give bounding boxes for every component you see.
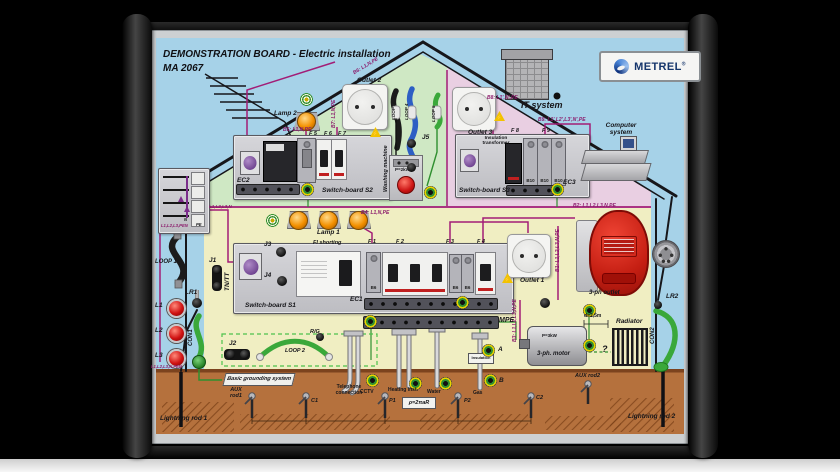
- j2-jack-right[interactable]: [240, 350, 249, 359]
- wire-b8-label: B8: L1',N',PE: [487, 96, 518, 102]
- outlet1-hole-left: [520, 254, 524, 258]
- ec1-label: EC1: [350, 296, 363, 303]
- wire-b4-label: B4: L1,N,PE: [361, 211, 389, 217]
- supply-arrow-1: [178, 196, 184, 202]
- rho-formula-label: ρ=2πaR: [409, 400, 430, 406]
- j5-jack-lower[interactable]: [407, 163, 416, 172]
- cctv-label: CCTV: [360, 390, 374, 396]
- fuse-f5-label: F 5: [309, 131, 317, 137]
- rho-formula-box: ρ=2πaR: [402, 397, 436, 409]
- it-system-label: IT system: [521, 100, 563, 110]
- outlet3-socket[interactable]: [452, 87, 496, 131]
- washing-machine-label: Washing machine: [383, 145, 389, 192]
- mpe-bar[interactable]: [363, 316, 499, 329]
- lamp1-rotary-switch[interactable]: [239, 253, 262, 280]
- phase-lamp-l2-label: L2: [155, 327, 163, 334]
- right-earth-terminal-2[interactable]: [583, 339, 596, 352]
- supply-panel-label: L1,L2,L3,PEN: [161, 224, 188, 229]
- loop1-label: LOOP 1: [155, 259, 177, 266]
- rg-label: R/G: [310, 329, 320, 335]
- terminal-b-earth[interactable]: [484, 374, 497, 387]
- wire-b5-label: B5: L1,N,PE: [283, 128, 311, 134]
- board-title-line1: DEMONSTRATION BOARD - Electric installat…: [163, 48, 391, 62]
- metrel-swirl-icon: [614, 59, 629, 74]
- j4-jack[interactable]: [277, 276, 287, 286]
- wire-b2-label: B2: L1,L2,L3,N,PE: [573, 204, 616, 210]
- con1-jack[interactable]: [192, 355, 206, 369]
- s1-breaker-1pole[interactable]: [475, 252, 496, 295]
- s2-breaker-1-mark: [319, 173, 329, 176]
- outlet3-hole-left: [465, 107, 469, 111]
- gas-label: Gas: [473, 391, 482, 397]
- con1-label: CON1: [188, 329, 195, 346]
- motor-label: 3-ph. motor: [537, 351, 570, 358]
- supply-module-2: [191, 186, 205, 199]
- phase-lamp-l1: [167, 299, 186, 318]
- question-mark-label: ?: [602, 344, 608, 354]
- computer-desk-row2: [580, 163, 651, 181]
- outlet2-face: [347, 89, 383, 125]
- s1-fuse-module-1[interactable]: B6: [366, 252, 381, 293]
- s3-rotary-switch[interactable]: [460, 149, 479, 172]
- p1-label: P1: [389, 398, 396, 404]
- s1-terminal-strip[interactable]: [364, 298, 498, 310]
- j3-jack[interactable]: [276, 247, 286, 257]
- supply-arrow-2: [184, 206, 190, 212]
- terminal-a-label: A: [498, 346, 503, 353]
- wire-b7-label: B7: L1,N,PE: [332, 100, 338, 128]
- outlet2-label: Outlet 2: [357, 77, 381, 84]
- loop3-label: LOOP 3: [391, 104, 396, 120]
- outlet3-hole-right: [479, 107, 483, 111]
- basic-grounding-banner: Basic grounding system: [222, 373, 295, 386]
- s3-breaker-mark: [508, 177, 519, 180]
- wire-b1-label: B1: L1,L2,L3,N,PE: [556, 229, 562, 272]
- cee-label-plate: [601, 236, 637, 257]
- phase-lamp-l3-label: L3: [155, 352, 163, 359]
- s2-main-switch-lever[interactable]: [302, 149, 312, 168]
- motor-shaft: [519, 339, 530, 349]
- j1-jack-lower[interactable]: [213, 282, 221, 290]
- s1-earth-terminal[interactable]: [456, 296, 469, 309]
- s3-breaker-black[interactable]: [505, 143, 522, 184]
- cee-slot: [602, 273, 636, 284]
- lightning-rod2-label: Lightning rod 2: [628, 413, 675, 420]
- lamp1-earth-target: [266, 214, 279, 227]
- left-post: [122, 14, 152, 458]
- outlet2-hole-left: [355, 105, 359, 109]
- lr2-connector[interactable]: [652, 240, 680, 268]
- lr2-label: LR2: [666, 293, 678, 300]
- mpe-earth-terminal[interactable]: [364, 315, 377, 328]
- aux-rod1-label: AUX rod1: [224, 387, 248, 399]
- fi-shorting-label: FI shorting: [313, 240, 341, 246]
- loop4-label: LOOP 4: [404, 104, 409, 120]
- incoming-wire-label: L1,L2,L3,N,PEN: [151, 365, 182, 370]
- phase-lamp-l2: [167, 324, 186, 343]
- j1-label: J1: [209, 257, 216, 264]
- s1-breaker-3pole[interactable]: [382, 252, 448, 296]
- lamp2-label: Lamp 2: [274, 110, 297, 117]
- supply-module-3: [191, 200, 205, 213]
- j1-jack-upper[interactable]: [213, 266, 221, 274]
- fuse-f8-label: F 8: [511, 128, 519, 134]
- lr1-jack[interactable]: [192, 298, 202, 308]
- s3-fuse-module-2[interactable]: B10: [537, 138, 552, 186]
- outlet1-face: [512, 239, 546, 273]
- lamp1-bulb-1: [289, 211, 308, 230]
- supply-module-1: [191, 172, 205, 185]
- j4-label: J4: [264, 272, 271, 279]
- s2-terminal-strip[interactable]: [236, 184, 300, 195]
- s1-fuse-module-3[interactable]: B6: [461, 254, 474, 293]
- s1-breaker-1pole-toggle[interactable]: [480, 264, 491, 281]
- terminal-a-earth[interactable]: [482, 344, 495, 357]
- radiator-body: [612, 328, 648, 366]
- insulation-transformer-label: Insulation transformer: [477, 136, 515, 147]
- fuse-f3-label: F 3: [446, 239, 454, 245]
- radiator-label: Radiator: [616, 318, 642, 325]
- loop5-label: LOOP 5: [431, 106, 436, 122]
- demonstration-board-photo: DEMONSTRATION BOARD - Electric installat…: [0, 0, 840, 472]
- outlet1-label: Outlet 1: [520, 277, 544, 284]
- j5-jack-upper[interactable]: [407, 139, 416, 148]
- s2-breaker-2-mark: [334, 173, 344, 176]
- lamp2-rotary-switch[interactable]: [240, 151, 260, 175]
- computer-system-label: Computer system: [596, 122, 646, 137]
- switchboard-s2-label: Switch-board S2: [322, 187, 373, 194]
- s3-terminal-strip[interactable]: [506, 185, 554, 196]
- con2-label: CON2: [650, 327, 657, 344]
- lightning-rod1-label: Lightning rod 1: [160, 415, 207, 422]
- phase-lamp-l1-label: L1: [155, 302, 163, 309]
- washing-machine-lamp: [397, 176, 415, 194]
- computer-desk-row1: [581, 150, 649, 164]
- motor-power-label: P=3kW: [542, 333, 557, 338]
- ec2-label: EC2: [237, 177, 250, 184]
- s2-breaker-1[interactable]: [316, 139, 332, 180]
- switchboard-s3-label: Switch-board S3: [459, 187, 510, 194]
- s2-main-switch[interactable]: [297, 138, 316, 183]
- basic-grounding-label: Basic grounding system: [226, 376, 291, 382]
- three-phase-socket[interactable]: [589, 210, 649, 296]
- lamp1-label: Lamp 1: [317, 229, 340, 236]
- s2-rcd-label-tag: [266, 144, 284, 151]
- s1-rcd-text-lines: [301, 258, 327, 278]
- mpe-label: MPE: [499, 317, 514, 325]
- fuse-f4-label: F 4: [477, 239, 485, 245]
- heating-label: Heating inst.: [388, 388, 418, 394]
- s2-breaker-2[interactable]: [331, 139, 347, 180]
- outlet1-hole-right: [534, 254, 538, 258]
- outlet1-test-jack[interactable]: [540, 298, 550, 308]
- supply-n-label: N: [184, 218, 187, 223]
- j2-jack-left[interactable]: [226, 350, 235, 359]
- j5-label: J5: [422, 134, 429, 141]
- fuse-f1-label: F 1: [368, 239, 376, 245]
- loop2-label: LOOP 2: [285, 348, 305, 354]
- c1-label: C1: [311, 398, 318, 404]
- s1-breaker-1pole-mark: [478, 288, 493, 291]
- s1-breaker-mark: [385, 289, 445, 292]
- switchboard-s1-label: Switch-board S1: [245, 302, 296, 309]
- j3-label: J3: [264, 241, 271, 248]
- s1-rcd-device[interactable]: [296, 251, 361, 297]
- ec3-label: EC3: [563, 179, 576, 186]
- p2-label: P2: [464, 398, 471, 404]
- s2-breaker-2-toggle[interactable]: [335, 150, 343, 166]
- fuse-f9-label: F 9: [542, 128, 550, 134]
- motor-body: P=3kW 3-ph. motor: [527, 326, 587, 366]
- c2-label: C2: [536, 395, 543, 401]
- s1-breaker-toggle-3[interactable]: [432, 264, 442, 282]
- metrel-logo: METREL®: [599, 51, 701, 82]
- j2-label: J2: [229, 340, 236, 347]
- aux-rod2-label: AUX rod2: [575, 373, 600, 379]
- lamp1-bulb-2: [319, 211, 338, 230]
- lr2-jack[interactable]: [654, 301, 662, 309]
- outlet1-socket[interactable]: [507, 234, 551, 278]
- s1-breaker-toggle-1[interactable]: [388, 264, 398, 282]
- washing-earth-terminal[interactable]: [424, 186, 437, 199]
- water-label: Water: [427, 390, 441, 396]
- outlet3-face: [457, 92, 491, 126]
- computer-monitor: [620, 136, 637, 151]
- s1-breaker-toggle-2[interactable]: [410, 264, 420, 282]
- fuse-f6-label: F 6: [324, 131, 332, 137]
- lr1-label: LR1: [185, 289, 197, 296]
- three-phase-outlet-label: 3-ph outlet: [589, 290, 620, 297]
- s2-earth-terminal[interactable]: [301, 183, 314, 196]
- s2-rcd-device[interactable]: [263, 141, 297, 182]
- wire-b9-label: B9: L1',L2',L3',N',PE: [538, 118, 586, 124]
- outlet2-socket[interactable]: [342, 84, 388, 130]
- tn-tt-label: TN/TT: [224, 273, 231, 291]
- fuse-f7-label: F 7: [338, 131, 346, 137]
- supply-pe-label: PE: [196, 223, 202, 228]
- s3-fuse-module-1[interactable]: B10: [523, 138, 538, 186]
- s2-breaker-1-toggle[interactable]: [320, 150, 328, 166]
- fuse-f2-label: F 2: [396, 239, 404, 245]
- wire-bundle-label: L1,L2,L3,N: [209, 204, 232, 209]
- distance-label: d=2,5m: [584, 314, 601, 320]
- outlet2-hole-right: [371, 105, 375, 109]
- s1-rcd-toggle[interactable]: [339, 260, 352, 286]
- lamp2-earth-target: [300, 93, 313, 106]
- terminal-b-label: B: [499, 377, 504, 384]
- metrel-logo-text: METREL®: [634, 61, 686, 73]
